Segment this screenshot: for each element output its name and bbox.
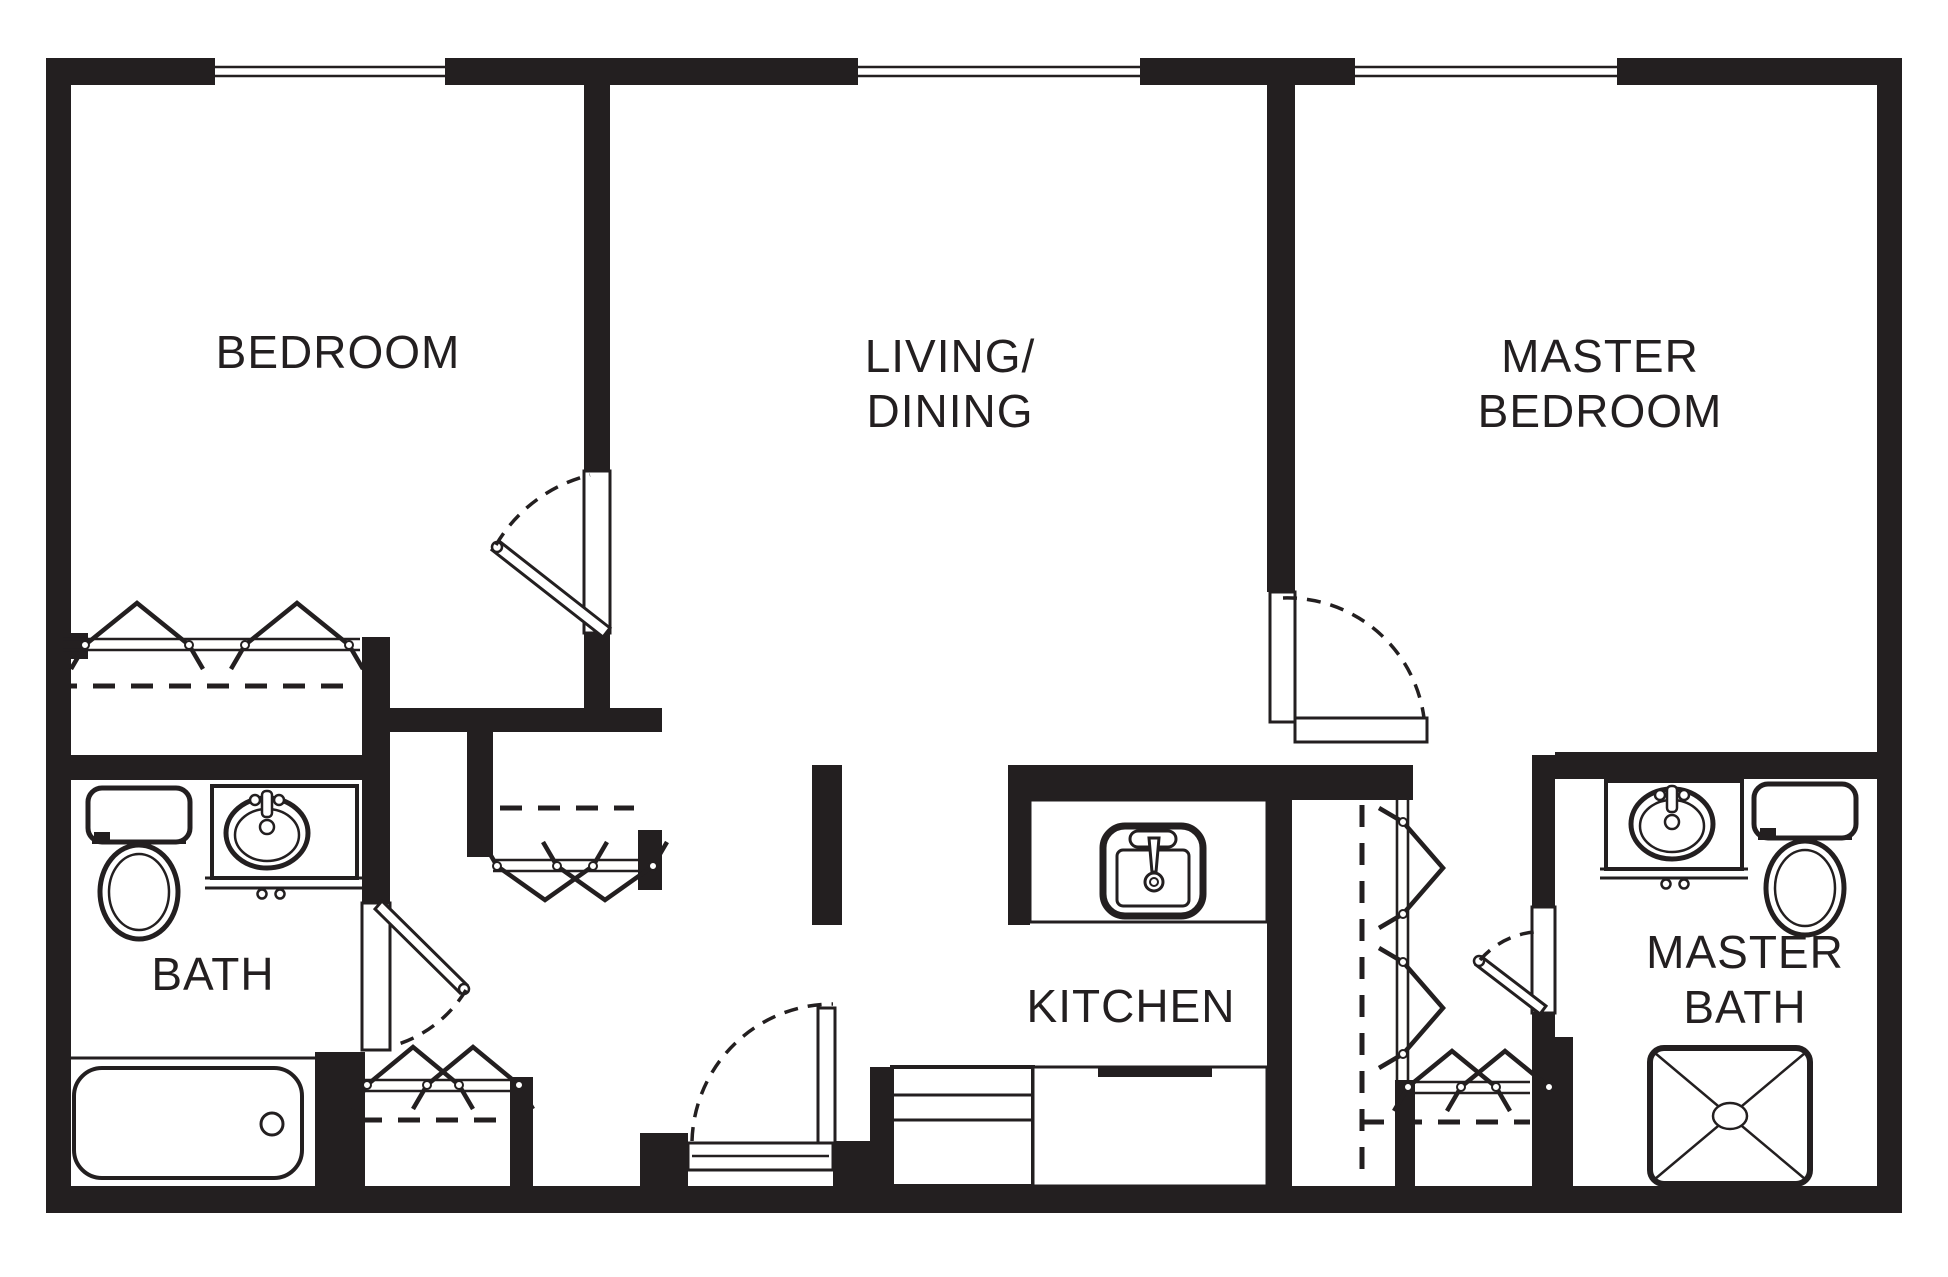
wall-kitchen-north-band [1008,765,1413,800]
wall-exterior-bottom [46,1186,1902,1213]
bifold-doors-master-vertical-pivot [1399,818,1407,826]
wall-bedroom-living-upper [584,85,610,471]
bifold-doors-master-vertical-pivot [1399,1050,1407,1058]
bifold-doors-hall-south-pivot [455,1081,463,1089]
bath-toilet-handle [94,832,110,840]
wall-hall-closet-stub [467,732,493,857]
bifold-doors-master-south-pivot [1457,1083,1465,1091]
bath-sink-handle [274,795,284,805]
master-bath-toilet-handle [1760,828,1776,836]
master-counter-pulls [1680,880,1689,889]
kitchen-counter-south [1033,1067,1267,1186]
wall-living-master-upper [1267,85,1295,592]
kitchen-range-box [892,1067,1033,1186]
window-living [858,58,1140,85]
bifold-doors-bedroom-pivot [185,641,193,649]
bathtub-drain [261,1113,283,1135]
master-bath-label-1: MASTER [1646,926,1844,978]
bifold-doors-master-south-pivot [1492,1083,1500,1091]
bifold-doors-master-south-pivot [1545,1083,1553,1091]
bifold-doors-master-vertical-pivot [1399,958,1407,966]
bedroom-label: BEDROOM [216,326,461,378]
wall-master-bath-north [1555,752,1902,779]
floor-plan: BEDROOMLIVING/DININGMASTERBEDROOMBATHKIT… [0,0,1948,1277]
bath-sink-handle [250,795,260,805]
wall-living-master-lower [1267,800,1292,1186]
wall-master-bath-west-block [1532,1037,1573,1188]
kitchen-sink-spout [1149,838,1159,872]
bath-toilet-bowl [100,845,178,939]
kitchen-sink-drain [1145,873,1163,891]
master-shower-drain [1713,1103,1747,1129]
bifold-doors-hall-east-pivot [589,862,597,870]
wall-hall-north [390,708,662,732]
bifold-doors-hall-east-pivot [553,862,561,870]
wall-entry-jamb-west [640,1133,688,1186]
bath-sink-drain [260,820,274,834]
bifold-doors-hall-south-pivot [423,1081,431,1089]
kitchen-label: KITCHEN [1027,980,1236,1032]
wall-bath-north [46,755,390,780]
door-entry-leaf [818,1008,835,1143]
master-bedroom-label-1: MASTER [1501,330,1699,382]
bifold-doors-hall-south-pivot [515,1081,523,1089]
door-master-bedroom-leaf [1270,592,1295,722]
bifold-doors-hall-east-pivot [493,862,501,870]
living-label-1: LIVING/ [865,330,1036,382]
bifold-doors-hall-east-pivot [649,862,657,870]
wall-kitchen-west-stub [812,765,842,925]
master-bath-sink-spout [1667,786,1677,812]
living-label-2: DINING [867,385,1034,437]
door-master-bedroom-threshold [1295,718,1427,742]
bifold-doors-bedroom-pivot [81,641,89,649]
door-bath-threshold [362,903,390,1050]
master-bath-sink-handle [1679,790,1689,800]
door-bedroom-threshold [584,471,610,633]
bath-counter-pulls [276,890,285,899]
kitchen-range-strip [1098,1067,1212,1077]
bifold-doors-bedroom-pivot [345,641,353,649]
bifold-doors-bedroom-pivot [241,641,249,649]
bath-sink-spout [262,791,272,817]
master-bath-toilet-bowl [1766,841,1844,935]
master-bedroom-label-2: BEDROOM [1478,385,1723,437]
bath-counter-pulls [258,890,267,899]
bifold-doors-master-vertical-pivot [1399,910,1407,918]
master-counter-pulls [1662,880,1671,889]
window-bedroom [215,58,445,85]
bifold-doors-master-south-pivot [1404,1083,1412,1091]
bath-label: BATH [151,948,274,1000]
wall-master-bath-west-stub [1532,1013,1555,1037]
floor-plan-canvas: BEDROOMLIVING/DININGMASTERBEDROOMBATHKIT… [0,0,1948,1277]
master-bath-sink-handle [1655,790,1665,800]
master-bath-label-2: BATH [1683,981,1806,1033]
wall-master-bath-west-upper [1532,755,1555,907]
wall-kitchen-lower-stub [870,1067,892,1186]
window-master-bedroom [1355,58,1617,85]
master-bath-sink-drain [1665,815,1679,829]
wall-kitchen-counter-cap [1008,765,1030,925]
bifold-doors-hall-south-pivot [363,1081,371,1089]
wall-exterior-right [1877,58,1902,1213]
